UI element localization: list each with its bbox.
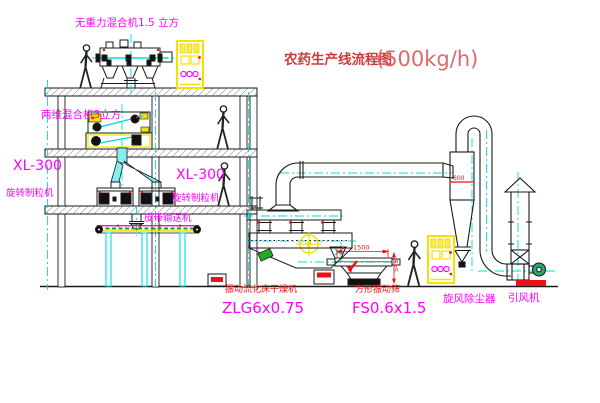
- worker-1: [80, 45, 91, 87]
- top-mixer-drawing: [96, 40, 172, 88]
- label-sieve-name: 方形振动筛: [355, 283, 400, 295]
- label-mid-mixer: 两维混合机3立方: [41, 108, 121, 121]
- label-top-mixer: 无重力混合机1.5 立方: [75, 16, 179, 29]
- label-sieve-model: FS0.6x1.5: [352, 299, 426, 317]
- floor-slab-1: [45, 88, 257, 96]
- dim-cyclone-diameter: 600: [453, 175, 465, 182]
- column-4: [250, 96, 257, 287]
- sieve-drawing: [327, 247, 400, 285]
- worker-4: [408, 241, 420, 285]
- label-granulator-left-model: XL-300: [13, 158, 62, 174]
- floor-slab-2: [45, 149, 257, 157]
- control-cabinet-1: [177, 41, 203, 88]
- cyclone-drawing: [450, 116, 492, 267]
- support-pedestal-1: [208, 274, 226, 286]
- control-cabinet-2: [428, 236, 454, 283]
- dim-sieve-height: 545: [392, 260, 400, 272]
- dryer-drawing: [247, 196, 352, 268]
- label-belt-conveyor: 皮带输送机: [144, 212, 192, 224]
- cad-drawing: 农药生产线流程图 (500kg/h) 无重力混合机1.5 立方 两维混合机3立方…: [0, 0, 600, 403]
- dim-sieve-length: 1500: [353, 244, 370, 252]
- page-title-capacity: (500kg/h): [376, 47, 478, 71]
- label-dryer-model: ZLG6x0.75: [222, 299, 304, 317]
- granulator-units: [97, 182, 175, 206]
- label-granulator-left-name: 旋转制粒机: [6, 187, 54, 199]
- belt-conveyor-drawing: [95, 225, 201, 287]
- stack-and-fan-drawing: [480, 178, 546, 286]
- support-pedestal-2: [314, 270, 334, 284]
- column-1: [58, 96, 65, 287]
- label-granulator-mid-name: 旋转制粒机: [172, 192, 220, 204]
- label-fan: 引风机: [508, 291, 540, 304]
- label-dryer-name: 振动流化床干燥机: [225, 283, 297, 295]
- process-flow-diagram: 农药生产线流程图 (500kg/h) 无重力混合机1.5 立方 两维混合机3立方…: [0, 0, 600, 403]
- column-3: [240, 96, 247, 287]
- worker-2: [217, 106, 228, 148]
- label-cyclone: 旋风除尘器: [443, 292, 496, 305]
- exhaust-duct: [268, 161, 453, 211]
- label-granulator-mid-model: XL-300: [176, 167, 225, 183]
